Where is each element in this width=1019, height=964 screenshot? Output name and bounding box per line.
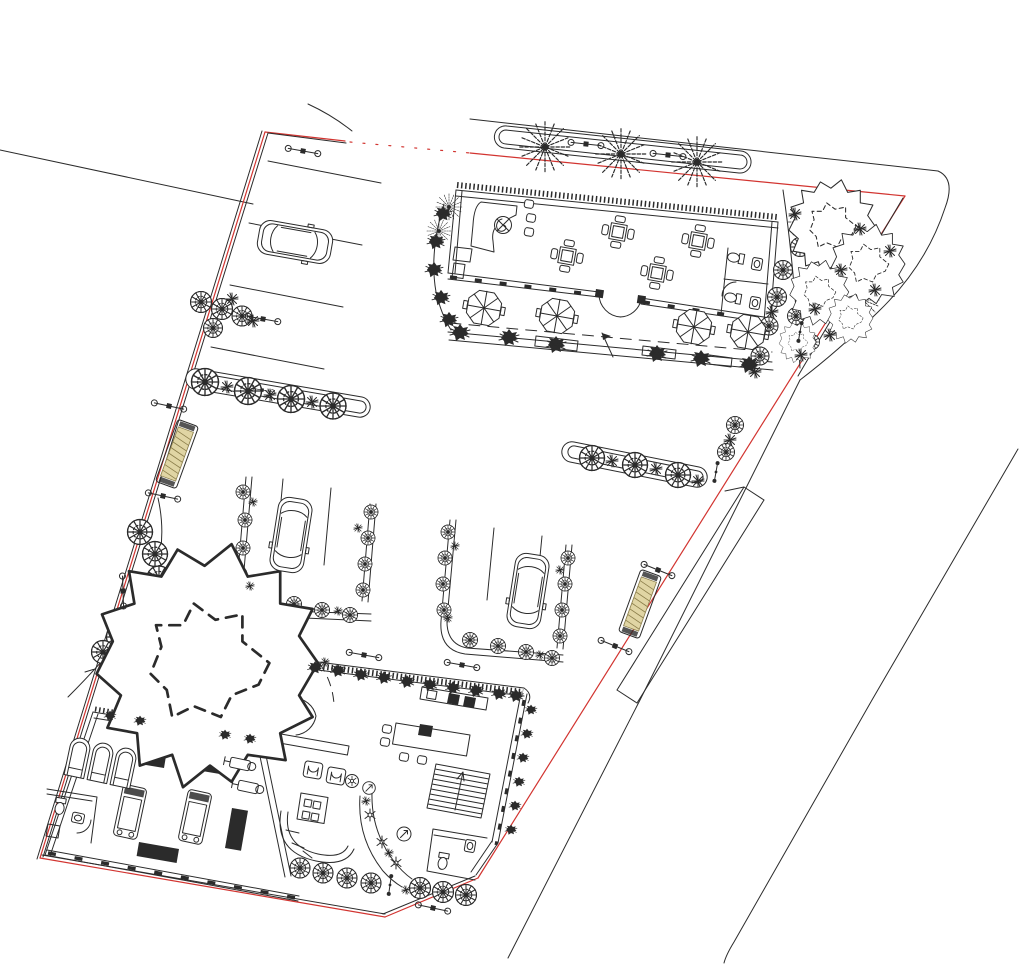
- shrub: [724, 434, 736, 446]
- shrub: [692, 475, 704, 487]
- bar-stool: [524, 199, 534, 208]
- parking-bush: [361, 531, 375, 545]
- parking-bush: [358, 557, 372, 571]
- exercise-machine: [231, 779, 264, 795]
- tree: [337, 868, 357, 888]
- parked-car: [502, 551, 553, 630]
- parking-bush: [436, 577, 450, 591]
- shrub: [334, 607, 342, 615]
- parking-bush: [558, 577, 572, 591]
- tree: [143, 542, 168, 567]
- toilet: [724, 292, 742, 305]
- flower: [348, 776, 356, 786]
- parasol: [533, 296, 580, 337]
- parking-bush: [364, 505, 378, 519]
- parking-bush: [343, 608, 358, 623]
- gym-left-wall: [45, 712, 98, 856]
- sink: [464, 839, 476, 853]
- island-stool: [380, 737, 390, 746]
- shrub: [385, 849, 393, 857]
- lamp-post: [444, 659, 480, 671]
- toilet: [437, 852, 450, 870]
- road-west-edge: [0, 150, 253, 204]
- tree: [727, 417, 744, 434]
- terrace-flag-pennant: [602, 333, 611, 340]
- parked-car: [265, 495, 316, 574]
- spa-bed: [64, 736, 92, 778]
- hedge-clump: [427, 234, 445, 249]
- tree: [232, 306, 252, 326]
- lamp-post: [346, 649, 382, 661]
- reception-spiral: [495, 217, 512, 234]
- sprinkler: [386, 874, 393, 896]
- shrub: [444, 614, 452, 622]
- hedge-clump: [525, 705, 537, 715]
- drain-symbol: [397, 827, 411, 841]
- lamp-post: [285, 145, 321, 157]
- island-stool: [382, 724, 392, 733]
- hedge-clump: [513, 777, 525, 787]
- shrub: [824, 329, 836, 341]
- shrub: [221, 381, 233, 393]
- hedge-clump: [505, 825, 517, 835]
- parasol: [670, 307, 717, 348]
- tree: [623, 453, 648, 478]
- kitchen-island-stove: [418, 724, 433, 737]
- parking-bush: [315, 603, 330, 618]
- parked-car: [255, 216, 335, 268]
- tree: [361, 873, 381, 893]
- parking-bush: [553, 629, 567, 643]
- lamp-post: [415, 901, 451, 914]
- shrub: [766, 306, 778, 318]
- cad-viewport: [0, 0, 1019, 964]
- tree: [456, 885, 477, 906]
- parking-bush: [437, 603, 451, 617]
- treadmill: [113, 784, 147, 840]
- tree: [410, 878, 431, 899]
- tree: [192, 369, 219, 396]
- shrub: [402, 886, 410, 894]
- sidewalk-strip-end: [617, 690, 637, 703]
- dining-table: [638, 254, 675, 291]
- parking-bush: [238, 513, 252, 527]
- spa-bed: [87, 741, 115, 783]
- parking-bush: [463, 633, 478, 648]
- parking-bush: [519, 645, 534, 660]
- shrub: [226, 293, 238, 305]
- gym-mat-2: [225, 808, 248, 851]
- shrub: [451, 542, 459, 550]
- bar-stool: [526, 213, 536, 222]
- hedge-clump: [509, 801, 521, 811]
- tree: [290, 858, 310, 878]
- road-east-east-edge: [724, 449, 1018, 963]
- tree: [278, 386, 305, 413]
- sink: [71, 812, 85, 824]
- tree: [320, 393, 346, 419]
- toilet: [727, 252, 745, 265]
- spa-bed: [110, 746, 138, 788]
- parking-bush: [236, 485, 250, 499]
- tree: [666, 463, 691, 488]
- shrub: [354, 524, 362, 532]
- tree: [768, 288, 787, 307]
- dining-table: [548, 237, 585, 274]
- shrub: [362, 797, 370, 805]
- shrub: [606, 455, 618, 467]
- parasol: [460, 288, 507, 329]
- hedge-clump: [450, 324, 470, 341]
- shrub: [650, 463, 662, 475]
- hedge-clump: [432, 290, 450, 305]
- boundary-top-red-dotted: [350, 142, 470, 153]
- decor-circle: [363, 782, 376, 795]
- treadmill: [178, 789, 212, 845]
- armchair: [326, 767, 347, 786]
- road-entrance-curve: [308, 104, 352, 131]
- shrub: [854, 223, 866, 235]
- boundary-top-red: [265, 132, 345, 141]
- tree: [313, 863, 333, 883]
- parking-stall-lines-northwest: [211, 161, 381, 369]
- hedge-clump: [521, 729, 533, 739]
- shrub: [249, 498, 257, 506]
- bar-stool: [524, 227, 534, 236]
- lounge-bottom-wall: [427, 841, 498, 880]
- shrub: [306, 396, 318, 408]
- shrub: [536, 651, 544, 659]
- coffee-table-cushions: [302, 799, 321, 821]
- shrub: [321, 658, 329, 666]
- sofa-arc-inner: [287, 812, 348, 855]
- tree: [235, 378, 262, 405]
- shrub: [809, 303, 821, 315]
- island-stool: [417, 755, 427, 764]
- terrace-dashed-line: [450, 323, 772, 352]
- restaurant-door-posts: [595, 289, 646, 304]
- parking-bush: [441, 525, 455, 539]
- boundary-south-red: [40, 858, 385, 917]
- shrub: [789, 208, 801, 220]
- hedge-clump: [517, 753, 529, 763]
- site-plan-canvas: [0, 0, 1019, 964]
- sprinkler: [712, 461, 720, 483]
- shrub: [884, 245, 896, 257]
- parking-bush: [236, 541, 250, 555]
- parking-bush: [438, 551, 452, 565]
- lounge-wc-walls: [427, 829, 487, 871]
- tree: [128, 520, 153, 545]
- lounge-right-hedge-band: [496, 700, 524, 845]
- lounge-right-wall: [492, 693, 527, 843]
- parking-bush: [491, 639, 506, 654]
- parking-bush: [561, 551, 575, 565]
- lounge-shelf: [279, 734, 349, 755]
- boundary-top-line: [268, 133, 346, 143]
- palm-tree: [596, 129, 647, 180]
- gym-mat-1: [137, 842, 179, 863]
- garden-canopy: [828, 294, 873, 344]
- hedge-clump: [492, 687, 507, 700]
- tree: [580, 446, 605, 471]
- sidewalk-strip-cap: [725, 487, 764, 500]
- hedge-clump: [499, 329, 519, 346]
- parking-bush: [356, 583, 370, 597]
- tree: [204, 319, 223, 338]
- shrub: [835, 264, 847, 276]
- sink: [749, 296, 761, 310]
- dining-table: [679, 222, 716, 259]
- tree: [774, 261, 793, 280]
- shrub: [556, 566, 564, 574]
- restaurant-door-arcs: [599, 294, 641, 317]
- shrub: [869, 284, 881, 296]
- parking-bush: [555, 603, 569, 617]
- sidewalk-strip-outer: [617, 487, 744, 690]
- tree: [191, 292, 212, 313]
- island-stool: [399, 752, 409, 761]
- dining-table: [599, 213, 636, 250]
- tree: [433, 882, 454, 903]
- shrub: [795, 349, 807, 361]
- armchair: [303, 761, 324, 780]
- parking-bush: [545, 651, 560, 666]
- sidewalk-strip-inner: [637, 500, 764, 703]
- sink: [751, 257, 763, 271]
- shrub: [246, 582, 254, 590]
- palm-tree: [672, 137, 723, 188]
